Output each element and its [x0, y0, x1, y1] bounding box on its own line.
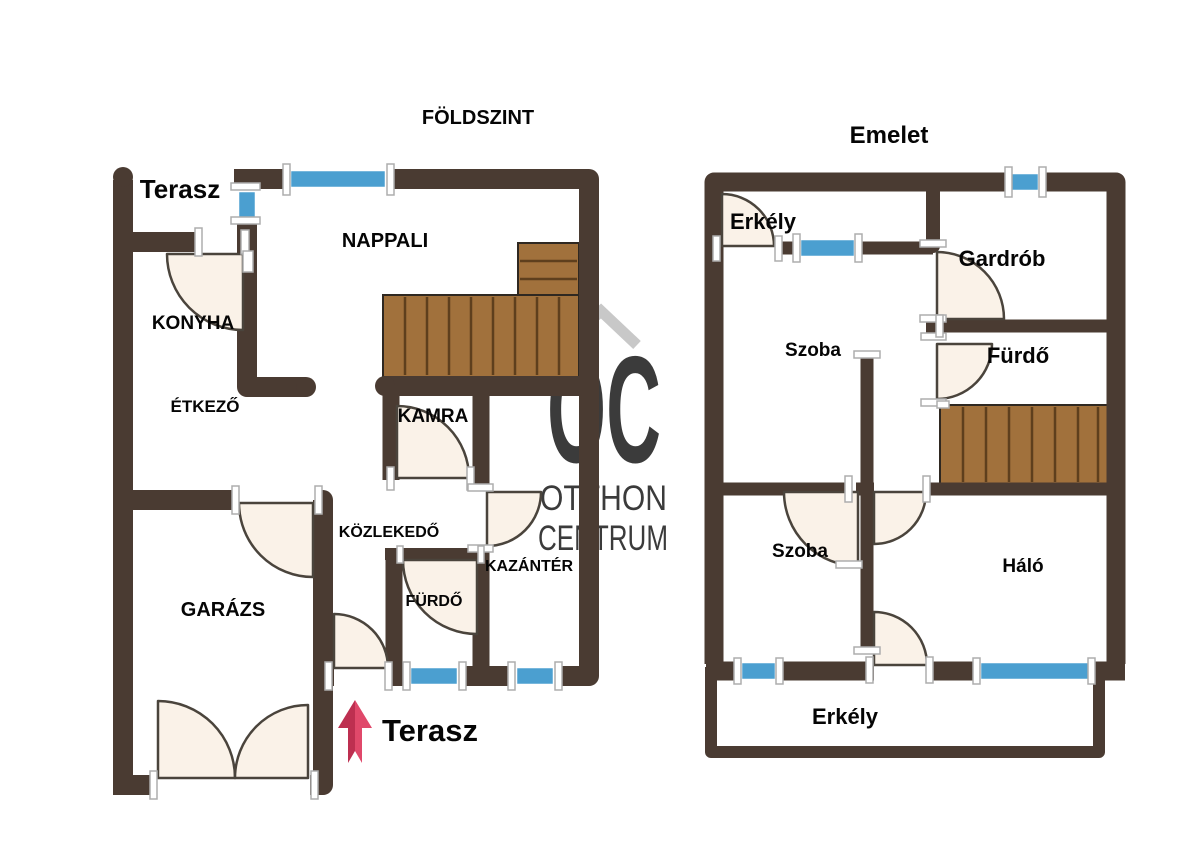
frame-cap	[385, 662, 392, 690]
terasz-entrance-arrow-icon	[338, 700, 372, 763]
frame-cap	[926, 657, 933, 683]
arrow-left-half	[338, 700, 355, 763]
frame-cap	[936, 315, 943, 337]
arrow-right-half	[355, 700, 372, 763]
room-label-nappali: NAPPALI	[342, 230, 428, 252]
window-kazanter	[516, 667, 554, 685]
ground-stairs-main	[383, 295, 579, 377]
frame-cap	[403, 662, 410, 690]
frame-cap	[397, 546, 403, 563]
frame-cap	[243, 251, 253, 272]
watermark-line1: OTTHON	[540, 479, 667, 518]
room-label-szoba-top: Szoba	[785, 340, 841, 361]
garage-door-left-leaf	[158, 701, 235, 778]
frame-cap	[508, 662, 515, 690]
ground-floor-title: FÖLDSZINT	[422, 106, 534, 129]
window-nappali	[290, 170, 386, 188]
frame-cap	[845, 476, 852, 502]
frame-cap	[232, 486, 239, 514]
frame-cap	[854, 351, 880, 358]
frame-cap	[855, 234, 862, 262]
frame-cap	[325, 662, 332, 690]
room-label-halo: Háló	[1002, 556, 1043, 577]
frame-cap	[387, 164, 394, 195]
window-furdo	[410, 667, 458, 685]
frame-cap	[283, 164, 290, 195]
frame-cap	[231, 183, 260, 190]
room-label-konyha: KONYHA	[152, 313, 235, 334]
upper-floor-title: Emelet	[850, 122, 929, 149]
room-label-terasz-bottom: Terasz	[382, 713, 478, 748]
frame-cap	[775, 236, 782, 261]
frame-cap	[937, 401, 949, 408]
door-garazs	[239, 503, 313, 577]
room-label-szoba-bottom: Szoba	[772, 541, 828, 562]
room-label-kazanter: KAZÁNTÉR	[485, 556, 573, 575]
upper-stairs	[940, 405, 1108, 484]
window-erkely	[800, 239, 855, 257]
window-halo	[980, 662, 1089, 680]
frame-cap	[311, 771, 318, 799]
frame-cap	[1088, 658, 1095, 684]
frame-cap	[836, 561, 862, 568]
frame-cap	[231, 217, 260, 224]
room-label-erkely-bottom: Erkély	[812, 704, 879, 729]
frame-cap	[973, 658, 980, 684]
door-kazanter	[487, 492, 541, 546]
upper-floor-plan: Emelet Erkély Gardrób Szoba Fürdő Szoba …	[706, 122, 1125, 752]
upper-stairs-run	[940, 405, 1108, 484]
floorplan-page: OC OTTHON CENTRUM	[0, 0, 1200, 860]
room-label-gardrob: Gardrób	[959, 246, 1046, 271]
frame-cap	[866, 657, 873, 683]
frame-cap	[387, 467, 394, 490]
frame-cap	[1039, 167, 1046, 197]
frame-cap	[854, 647, 880, 654]
frame-cap	[776, 658, 783, 684]
room-label-etkezo: ÉTKEZŐ	[171, 397, 240, 416]
frame-cap	[478, 546, 484, 563]
frame-cap	[555, 662, 562, 690]
garage-door-right-leaf	[235, 705, 308, 778]
door-halo	[874, 492, 926, 544]
frame-cap	[923, 476, 930, 502]
ground-floor-plan: FÖLDSZINT Terasz NAPPALI KONYHA ÉTKEZŐ K…	[113, 106, 589, 799]
wall-cap	[113, 167, 133, 187]
window-szoba-bottom	[741, 662, 776, 680]
wall-konyha-right	[247, 222, 306, 387]
room-label-terasz-top: Terasz	[140, 174, 220, 204]
floorplan-canvas: OC OTTHON CENTRUM	[0, 0, 1200, 860]
window-gardrob	[1009, 173, 1039, 191]
room-label-kozlekedo: KÖZLEKEDŐ	[339, 522, 439, 541]
frame-cap	[713, 236, 720, 261]
room-label-furdo-upper: Fürdő	[987, 343, 1049, 368]
ground-stairs	[383, 243, 579, 377]
frame-cap	[459, 662, 466, 690]
watermark-line2: CENTRUM	[538, 519, 668, 558]
room-label-garazs: GARÁZS	[181, 598, 265, 621]
frame-cap	[920, 240, 946, 247]
room-label-furdo-ground: FÜRDŐ	[406, 591, 463, 610]
room-label-erkely-top: Erkély	[730, 209, 797, 234]
frame-cap	[793, 234, 800, 262]
frame-cap	[1005, 167, 1012, 197]
frame-cap	[468, 484, 493, 491]
door-erkely-bottom	[874, 612, 927, 665]
frame-cap	[734, 658, 741, 684]
door-furdo-upper	[937, 344, 992, 399]
frame-cap	[150, 771, 157, 799]
ground-stairs-upper	[518, 243, 579, 299]
door-terasz-exit	[334, 614, 388, 668]
wall-cap	[296, 377, 316, 397]
frame-cap	[315, 486, 322, 514]
room-label-kamra: KAMRA	[398, 406, 469, 427]
frame-cap	[195, 228, 202, 256]
